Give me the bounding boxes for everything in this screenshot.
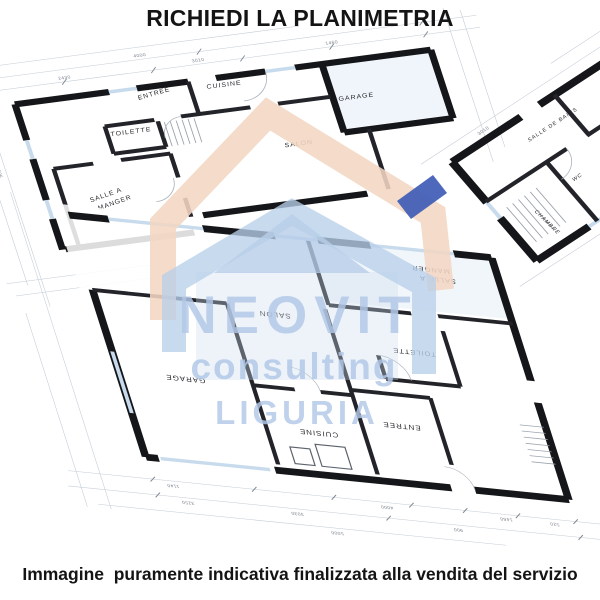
- dim-number: 900: [452, 526, 463, 532]
- disclaimer-caption: Immagine puramente indicativa finalizzat…: [0, 564, 600, 585]
- dim-number: 900: [0, 169, 5, 178]
- dim-number: 3250: [181, 499, 195, 506]
- stairs: [164, 118, 202, 146]
- watermark-brand: NEOVIT: [178, 286, 417, 345]
- dim-number: 1460: [325, 40, 339, 47]
- placeholder-image: { "title": "RICHIEDI LA PLANIMETRIA", "c…: [0, 0, 600, 600]
- page-title: RICHIEDI LA PLANIMETRIA: [0, 5, 600, 32]
- image-stage: 2430 3010 1460 4000 900 ENTREE CUISINE T…: [0, 0, 600, 600]
- walls: [452, 34, 600, 260]
- watermark-region: LIGURIA: [215, 394, 379, 431]
- dim-number: 1140: [166, 482, 180, 489]
- dim-number: 520: [549, 521, 560, 527]
- exterior-walls: [452, 34, 600, 260]
- dim-number: 5000: [330, 529, 344, 536]
- dim-number: 2430: [57, 75, 71, 82]
- dim-number: 4000: [379, 504, 393, 511]
- room-label-wc: WC: [571, 172, 584, 183]
- blueprint-scene: 2430 3010 1460 4000 900 ENTREE CUISINE T…: [0, 0, 600, 600]
- dim-number: 4000: [133, 52, 147, 59]
- dim-number: 1460: [499, 516, 513, 523]
- room-label-cuisine: CUISINE: [206, 80, 243, 91]
- room-label-salle-de-bains: SALLE DE BAINS: [527, 107, 580, 143]
- dim-number: 3010: [191, 57, 205, 64]
- dim-number: 3030: [290, 510, 304, 517]
- watermark-tagline: consulting: [190, 346, 397, 387]
- room-label-toilette: TOILETTE: [110, 126, 153, 138]
